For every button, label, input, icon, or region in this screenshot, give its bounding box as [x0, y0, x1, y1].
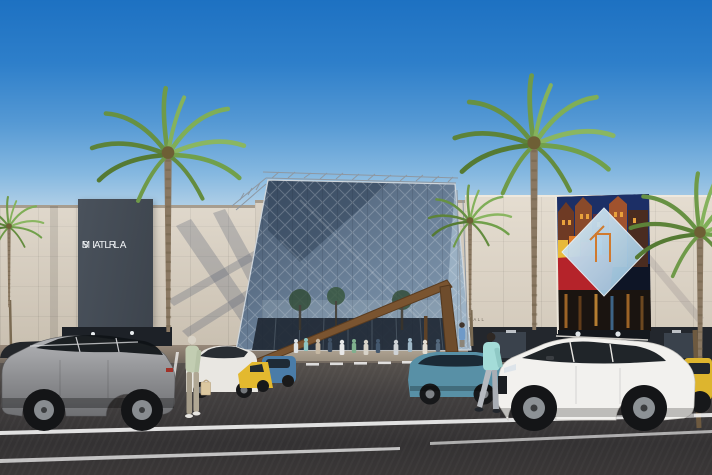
- billboard-artwork: [554, 192, 654, 334]
- glass-entrance-atrium: [232, 172, 471, 366]
- pedestrian-near-wall: [459, 322, 465, 347]
- palm-tree: [0, 197, 43, 307]
- billboard-downlight: [575, 331, 580, 336]
- palm-tree: [92, 88, 244, 332]
- billboard-downlight: [615, 331, 620, 336]
- scene-artwork: [0, 0, 712, 475]
- billboard: [554, 192, 654, 339]
- car-gray-suv: [2, 335, 175, 431]
- rendered-photo: SITRA MALL SITRA MALL: [0, 0, 712, 475]
